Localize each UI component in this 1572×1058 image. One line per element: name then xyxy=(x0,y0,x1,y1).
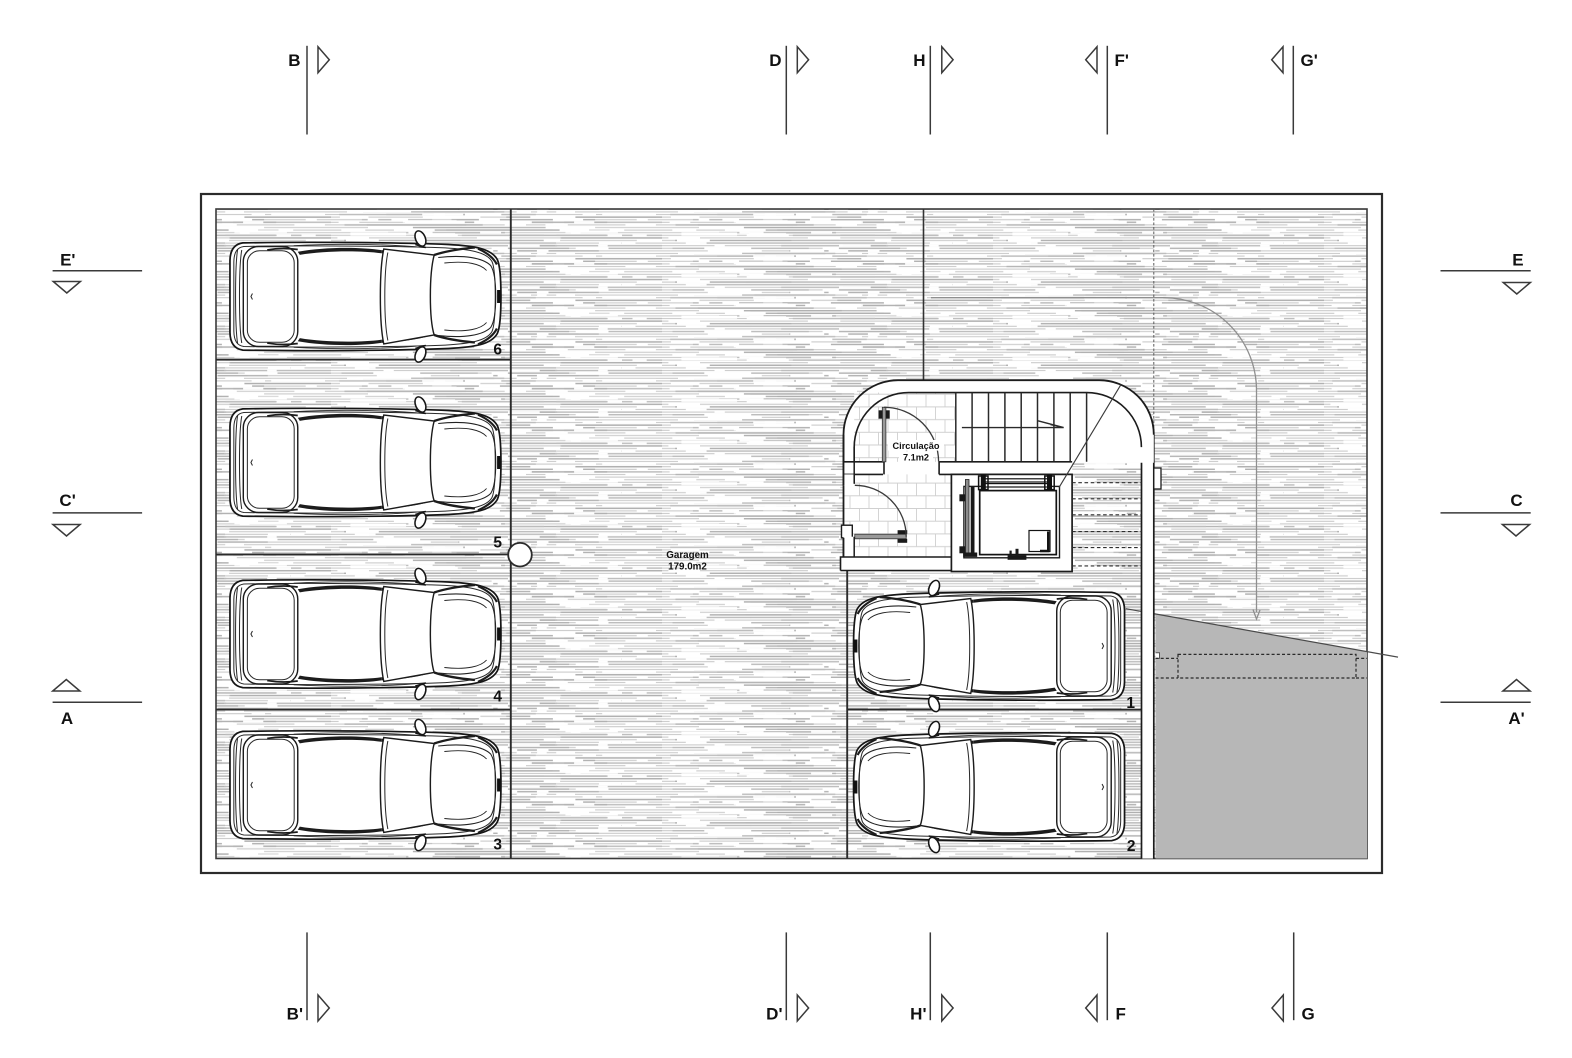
svg-text:B': B' xyxy=(287,1005,303,1024)
svg-text:179.0m2: 179.0m2 xyxy=(668,562,707,573)
svg-text:4: 4 xyxy=(493,689,502,706)
svg-text:H: H xyxy=(913,51,925,70)
svg-text:Circulação: Circulação xyxy=(893,441,940,451)
svg-text:G': G' xyxy=(1301,51,1318,70)
svg-text:Garagem: Garagem xyxy=(666,550,709,561)
svg-text:C': C' xyxy=(59,491,75,510)
svg-text:H': H' xyxy=(910,1005,926,1024)
svg-text:2: 2 xyxy=(1127,838,1136,855)
svg-text:A': A' xyxy=(1508,709,1524,728)
svg-text:5: 5 xyxy=(493,535,502,552)
svg-text:1: 1 xyxy=(1126,695,1135,712)
svg-text:E: E xyxy=(1512,251,1523,270)
svg-text:D': D' xyxy=(766,1005,782,1024)
svg-text:F: F xyxy=(1116,1005,1126,1024)
svg-text:6: 6 xyxy=(493,342,502,359)
svg-text:3: 3 xyxy=(493,837,502,854)
svg-text:D: D xyxy=(769,51,781,70)
svg-text:E': E' xyxy=(60,251,75,270)
svg-text:7.1m2: 7.1m2 xyxy=(903,452,929,462)
svg-text:G: G xyxy=(1302,1005,1315,1024)
svg-text:A: A xyxy=(61,709,73,728)
svg-text:F': F' xyxy=(1115,51,1129,70)
svg-text:C: C xyxy=(1510,491,1522,510)
svg-text:B: B xyxy=(288,51,300,70)
